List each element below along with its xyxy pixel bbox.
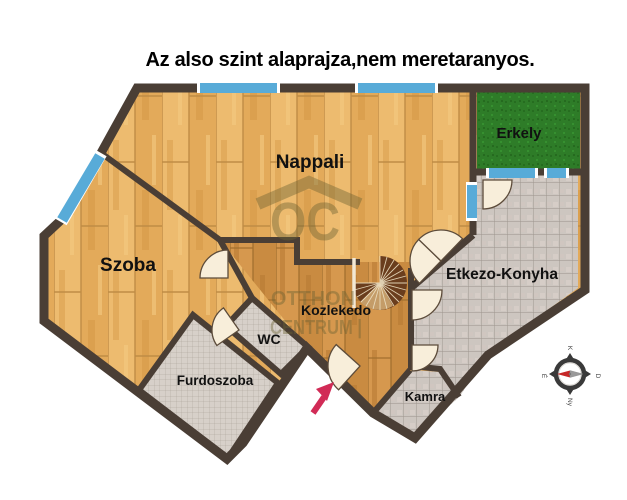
label-wc: WC — [257, 331, 280, 347]
watermark-logo-text: OC — [270, 192, 340, 252]
window-icon — [358, 83, 435, 93]
window-icon — [467, 185, 477, 218]
window-icon — [200, 83, 277, 93]
label-nappali: Nappali — [276, 152, 345, 173]
floor-plan-page: OC OTTHON CENTRUM | Nappali Szoba Erkely… — [0, 0, 627, 500]
entrance-arrow-icon — [313, 382, 334, 413]
watermark-line2: CENTRUM | — [270, 317, 362, 339]
label-szoba: Szoba — [100, 255, 156, 276]
label-kozlekedo: Kozlekedo — [301, 302, 371, 318]
window-icon — [547, 168, 566, 178]
label-erkely: Erkely — [496, 125, 542, 142]
compass-label-west: Ny — [566, 398, 573, 407]
page-title: Az also szint alaprajza,nem meretaranyos… — [146, 49, 535, 71]
floor-plan-canvas: OC OTTHON CENTRUM | Nappali Szoba Erkely… — [0, 0, 627, 500]
label-kamra: Kamra — [405, 389, 446, 404]
label-furdoszoba: Furdoszoba — [177, 373, 254, 388]
compass-label-south: D — [594, 374, 601, 379]
compass-rose-icon: É K D Ny — [540, 346, 601, 407]
label-etkezo-konyha: Etkezo-Konyha — [446, 266, 558, 283]
compass-label-north: É — [540, 374, 549, 379]
compass-label-east: K — [566, 346, 573, 351]
window-icon — [489, 168, 535, 178]
